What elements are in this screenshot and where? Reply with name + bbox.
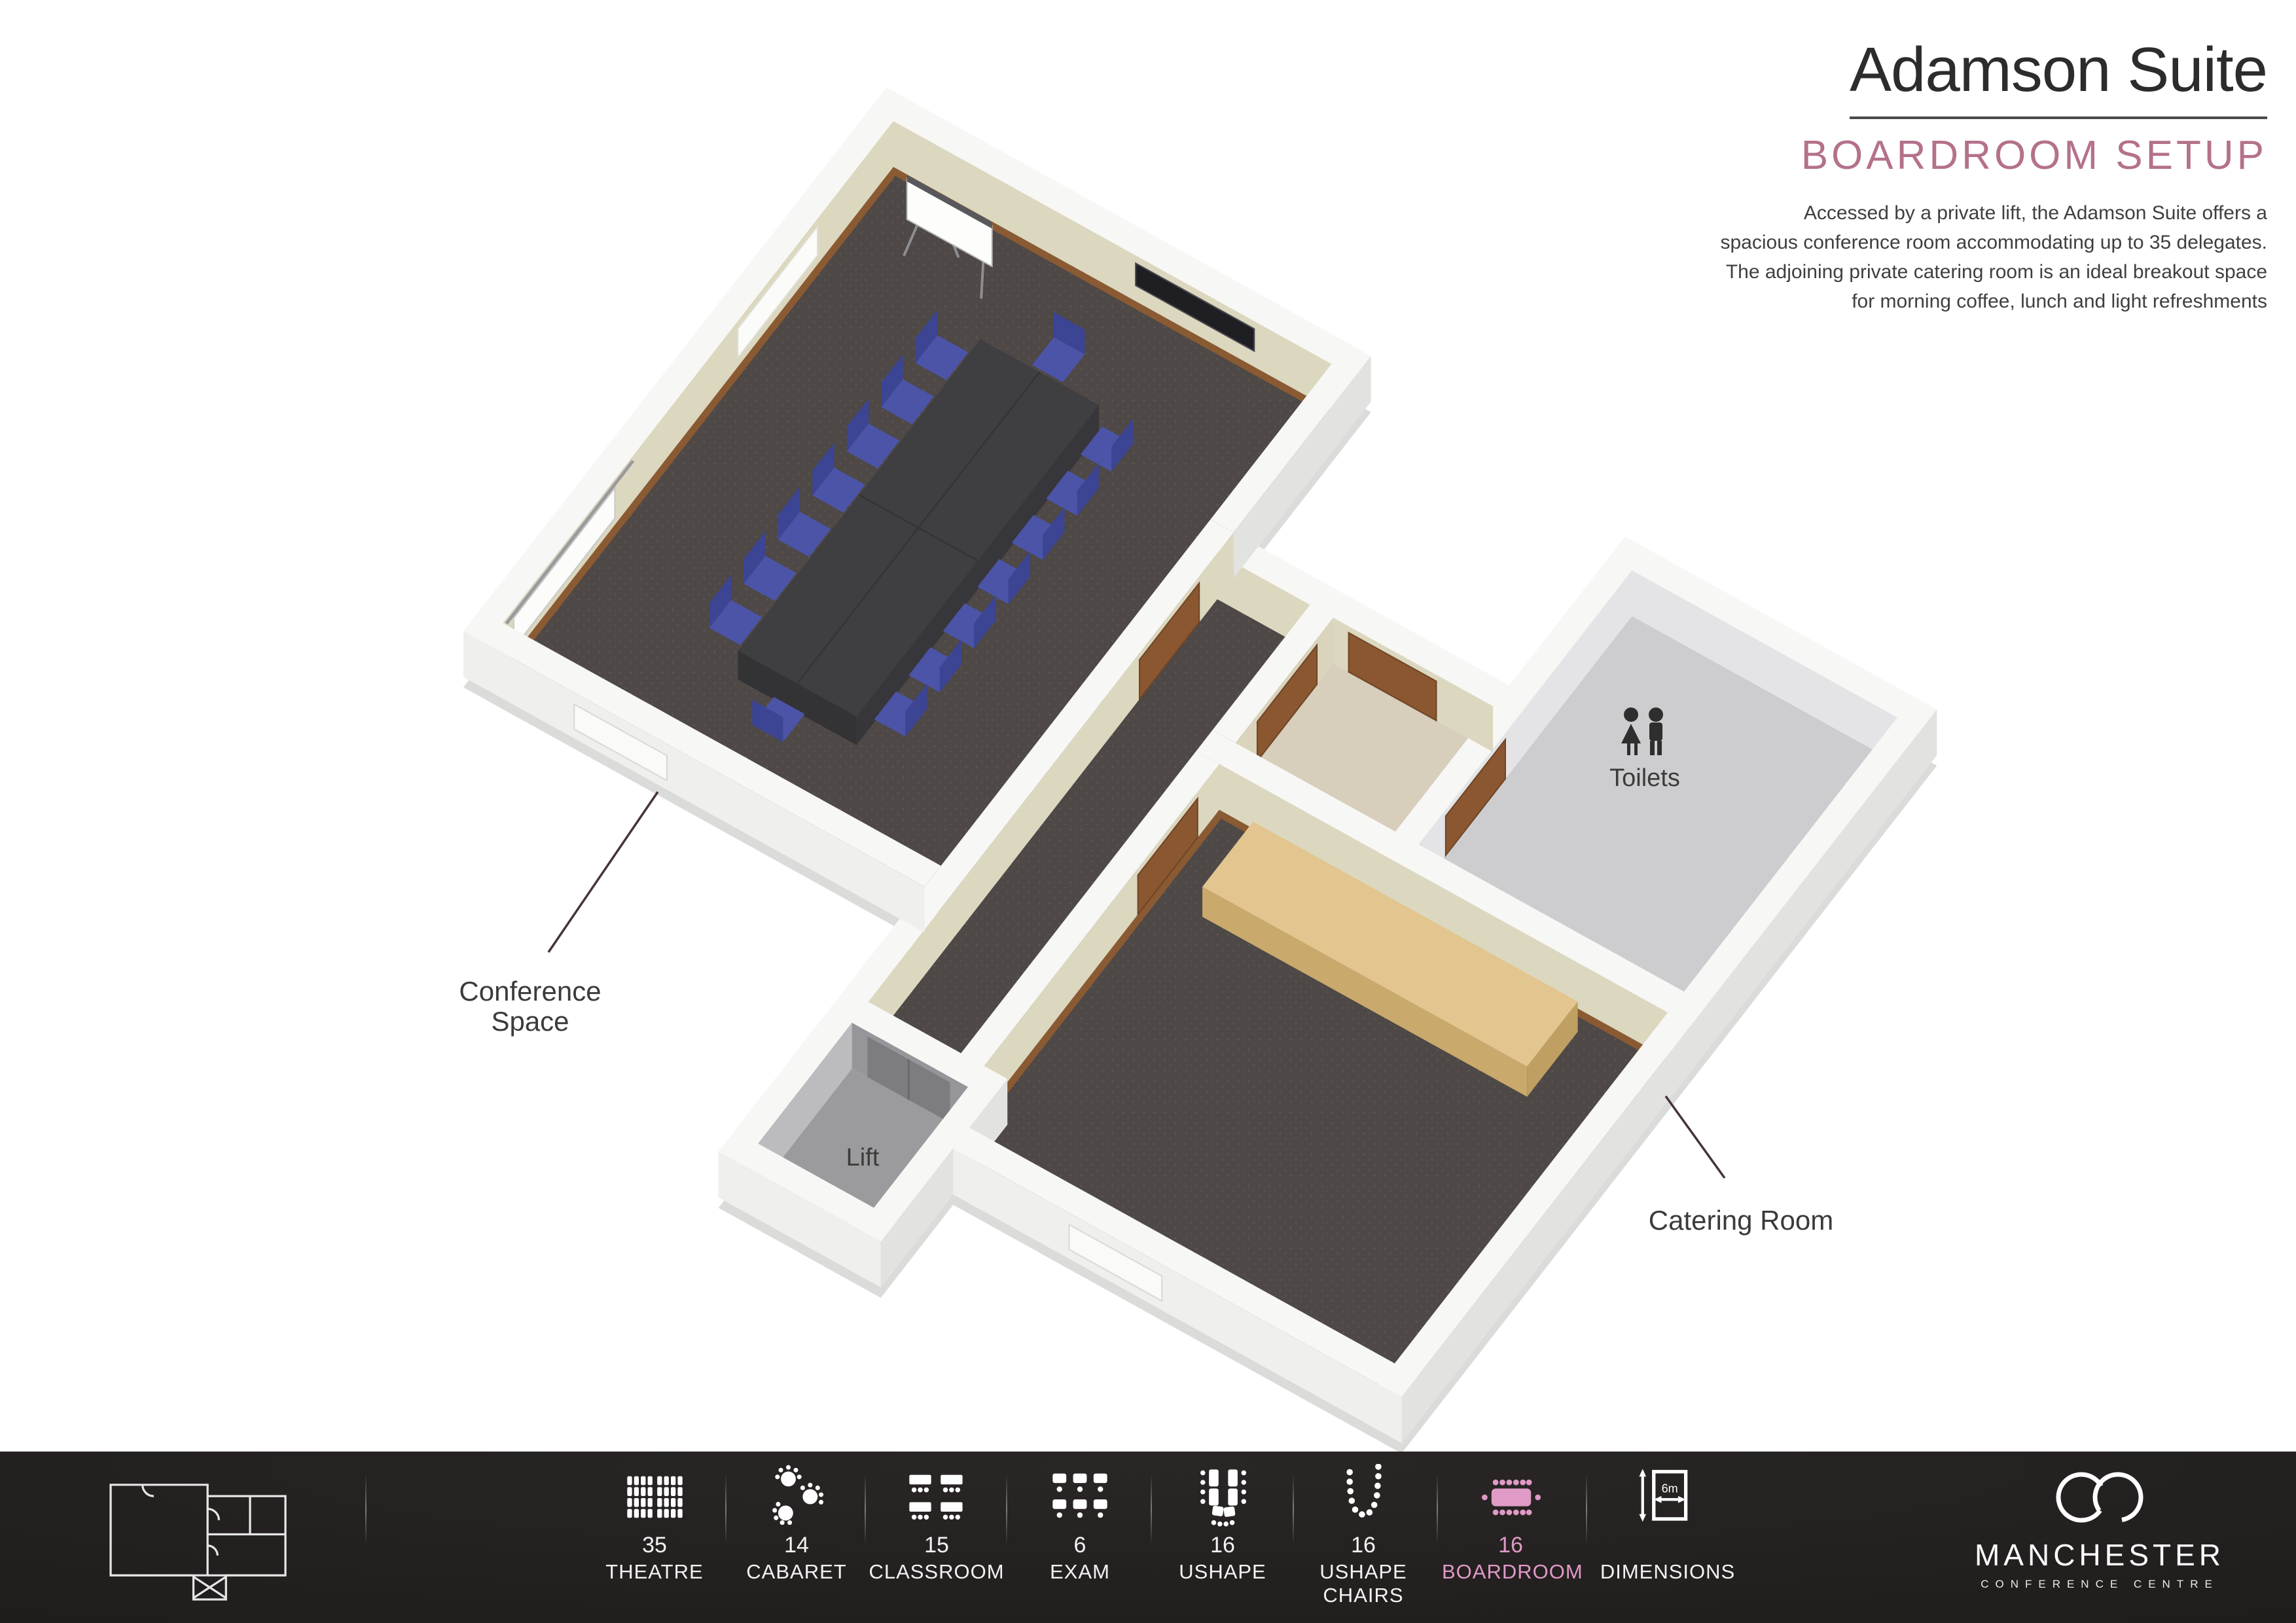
capacity-classroom[interactable]: 15 CLASSROOM <box>868 1463 1005 1584</box>
dimensions-icon: 6m <box>1599 1463 1736 1530</box>
footer-divider <box>1586 1474 1587 1544</box>
page: Adamson Suite BOARDROOM SETUP Accessed b… <box>0 0 2296 1623</box>
ushape-chairs-icon <box>1295 1463 1432 1530</box>
capacity-value: 35 <box>586 1533 723 1559</box>
capacity-label: USHAPE CHAIRS <box>1295 1560 1432 1607</box>
capacity-value: 15 <box>868 1533 1005 1559</box>
capacity-exam[interactable]: 6 EXAM <box>1011 1463 1149 1584</box>
capacity-value: 14 <box>728 1533 865 1559</box>
capacity-boardroom[interactable]: 16 BOARDROOM <box>1442 1463 1579 1584</box>
capacity-value: 16 <box>1295 1533 1432 1559</box>
footer-divider <box>1437 1474 1438 1544</box>
capacity-ushape[interactable]: 16 USHAPE <box>1154 1463 1291 1584</box>
capacity-cabaret[interactable]: 14 CABARET <box>728 1463 865 1584</box>
logo-name: MANCHESTER <box>1949 1537 2250 1573</box>
venue-logo: MANCHESTER CONFERENCE CENTRE <box>1949 1465 2250 1591</box>
page-title: Adamson Suite <box>1850 34 2267 119</box>
capacity-label: EXAM <box>1011 1560 1149 1584</box>
cabaret-icon <box>728 1463 865 1530</box>
description-line: spacious conference room accommodating u… <box>1720 228 2267 257</box>
header: Adamson Suite BOARDROOM SETUP Accessed b… <box>1720 34 2267 316</box>
theatre-icon <box>586 1463 723 1530</box>
exam-icon <box>1011 1463 1149 1530</box>
capacity-label: CABARET <box>728 1560 865 1584</box>
page-subtitle: BOARDROOM SETUP <box>1720 132 2267 179</box>
logo-rings-icon <box>2024 1465 2175 1533</box>
description: Accessed by a private lift, the Adamson … <box>1720 198 2267 316</box>
footer-divider <box>365 1474 367 1544</box>
catering-room-label: Catering Room <box>1643 1205 1839 1236</box>
capacity-ushape-chairs[interactable]: 16 USHAPE CHAIRS <box>1295 1463 1432 1607</box>
capacity-theatre[interactable]: 35 THEATRE <box>586 1463 723 1584</box>
capacity-dimensions[interactable]: 6m DIMENSIONS <box>1599 1463 1736 1584</box>
capacity-label: BOARDROOM <box>1442 1560 1579 1584</box>
footer-divider <box>865 1474 866 1544</box>
footer-divider <box>1006 1474 1007 1544</box>
dimension-width-value: 6m <box>1662 1482 1678 1495</box>
lift-label: Lift <box>797 1144 928 1172</box>
classroom-icon <box>868 1463 1005 1530</box>
boardroom-icon <box>1442 1463 1579 1530</box>
capacity-label: USHAPE <box>1154 1560 1291 1584</box>
capacity-label: CLASSROOM <box>868 1560 1005 1584</box>
capacity-value <box>1599 1533 1736 1559</box>
toilets-label: Toilets <box>1579 764 1710 793</box>
description-line: Accessed by a private lift, the Adamson … <box>1720 198 2267 228</box>
footer-divider <box>725 1474 726 1544</box>
capacity-value: 6 <box>1011 1533 1149 1559</box>
capacity-label: DIMENSIONS <box>1599 1560 1736 1584</box>
description-line: for morning coffee, lunch and light refr… <box>1720 287 2267 316</box>
conference-space-label: Conference Space <box>432 976 628 1037</box>
capacity-value: 16 <box>1442 1533 1579 1559</box>
capacity-label: THEATRE <box>586 1560 723 1584</box>
capacity-value: 16 <box>1154 1533 1291 1559</box>
footer-divider <box>1151 1474 1152 1544</box>
ushape-icon <box>1154 1463 1291 1530</box>
logo-tagline: CONFERENCE CENTRE <box>1949 1578 2250 1591</box>
mini-floorplan <box>98 1478 314 1609</box>
footer-divider <box>1293 1474 1294 1544</box>
description-line: The adjoining private catering room is a… <box>1720 257 2267 287</box>
